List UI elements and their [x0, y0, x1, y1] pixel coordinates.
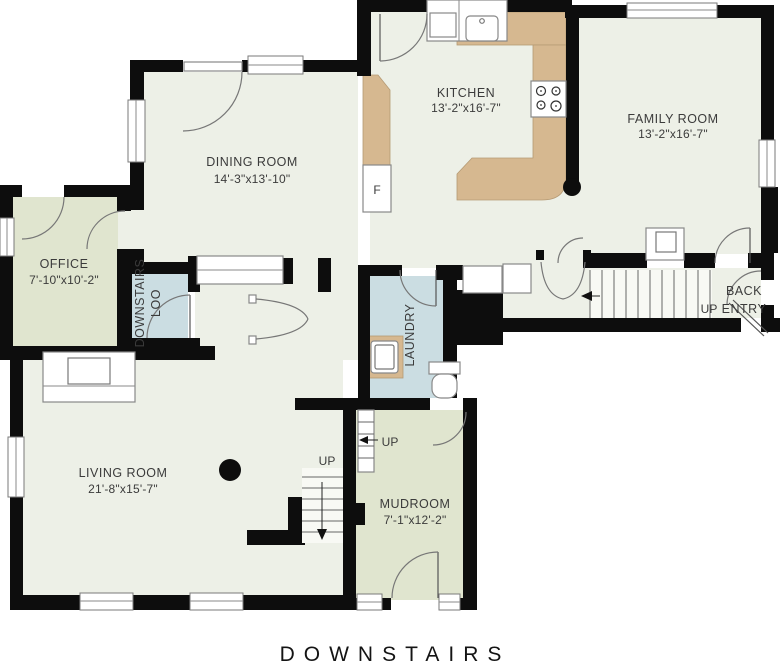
back-entry-label-line2: ENTRY [722, 302, 767, 316]
kitchen-column-dot [563, 178, 581, 196]
family-room-dims: 13'-2"x16'-7" [638, 127, 708, 141]
office-label: OFFICE [40, 257, 89, 271]
floorplan-drawing: KITCHEN 13'-2"x16'-7" FAMILY ROOM 13'-2"… [0, 0, 780, 671]
page-title: DOWNSTAIRS [280, 643, 511, 666]
central-stairs [302, 468, 343, 543]
kitchen-counter-pantry [363, 75, 390, 165]
window-mudroom-bottom-1 [357, 594, 382, 610]
back-entry-label-line1: BACK [726, 284, 762, 298]
living-room-dims: 21'-8"x15'-7" [88, 482, 158, 496]
up-label-mudroom: UP [382, 435, 399, 449]
window-office-left [0, 218, 14, 256]
window-family-right [759, 140, 775, 187]
living-room-column-dot [219, 459, 241, 481]
up-label-back-entry: UP [701, 302, 718, 316]
family-room-label: FAMILY ROOM [627, 112, 718, 126]
up-label-stairs: UP [319, 454, 336, 468]
window-living-bottom-1 [80, 593, 133, 610]
office-dims: 7'-10"x10'-2" [29, 273, 99, 287]
back-entry-cupboard-2 [503, 264, 531, 293]
mudroom-dims: 7'-1"x12'-2" [384, 513, 447, 527]
floorplan-page: KITCHEN 13'-2"x16'-7" FAMILY ROOM 13'-2"… [0, 0, 780, 671]
loo-label-line1: DOWNSTAIRS [133, 259, 147, 348]
window-mudroom-bottom-2 [439, 594, 460, 610]
dining-room-floor [143, 72, 358, 268]
stove-icon [531, 81, 566, 117]
back-entry-cupboard-1 [463, 266, 502, 293]
dining-room-dims: 14'-3"x13'-10" [214, 172, 291, 186]
chimney-icon [646, 228, 684, 260]
window-living-left [8, 437, 24, 497]
loo-label-line2: LOO [149, 289, 163, 317]
laundry-label: LAUNDRY [403, 303, 417, 366]
toilet-icon [429, 362, 460, 398]
window-family-top [627, 3, 717, 18]
laundry-sink-icon [371, 341, 398, 373]
back-entry-stairs [581, 270, 712, 318]
window-dining-left [128, 100, 145, 162]
mudroom-label: MUDROOM [380, 497, 451, 511]
kitchen-dims: 13'-2"x16'-7" [431, 101, 501, 115]
window-living-bottom-2 [190, 593, 243, 610]
kitchen-label: KITCHEN [437, 86, 495, 100]
fridge-label: F [373, 183, 380, 197]
living-room-label: LIVING ROOM [79, 466, 168, 480]
dining-room-label: DINING ROOM [206, 155, 298, 169]
hall-cabinet [197, 256, 283, 284]
kitchen-sink-icon [466, 16, 498, 41]
fireplace-icon [43, 352, 135, 402]
window-dining-top [248, 56, 303, 74]
